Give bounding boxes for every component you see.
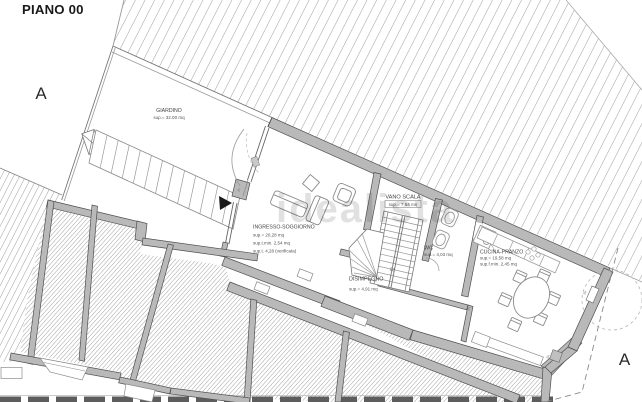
svg-text:WC: WC — [424, 246, 433, 252]
svg-text:sup.= 19,58 mq: sup.= 19,58 mq — [480, 256, 512, 261]
svg-text:sup.= 20,28 mq: sup.= 20,28 mq — [253, 233, 285, 238]
svg-text:sup.f.min. 2,45 mq: sup.f.min. 2,45 mq — [480, 262, 518, 267]
svg-text:sup.= 4,03 mq: sup.= 4,03 mq — [424, 252, 453, 257]
svg-text:GIARDINO: GIARDINO — [156, 108, 182, 114]
svg-text:sup.= 4,91 mq: sup.= 4,91 mq — [349, 287, 378, 292]
svg-text:A: A — [35, 84, 47, 103]
svg-text:sup.t.min. 2,54 mq: sup.t.min. 2,54 mq — [253, 241, 291, 246]
svg-text:idealista: idealista — [276, 187, 454, 231]
svg-text:A: A — [619, 350, 631, 369]
svg-text:sup.t. 4,28 (verificata): sup.t. 4,28 (verificata) — [253, 249, 297, 254]
svg-text:PIANO 00: PIANO 00 — [22, 2, 84, 17]
svg-text:sup.= 32.00 mq: sup.= 32.00 mq — [153, 115, 185, 120]
svg-text:DISIMPEGNO: DISIMPEGNO — [349, 277, 383, 283]
